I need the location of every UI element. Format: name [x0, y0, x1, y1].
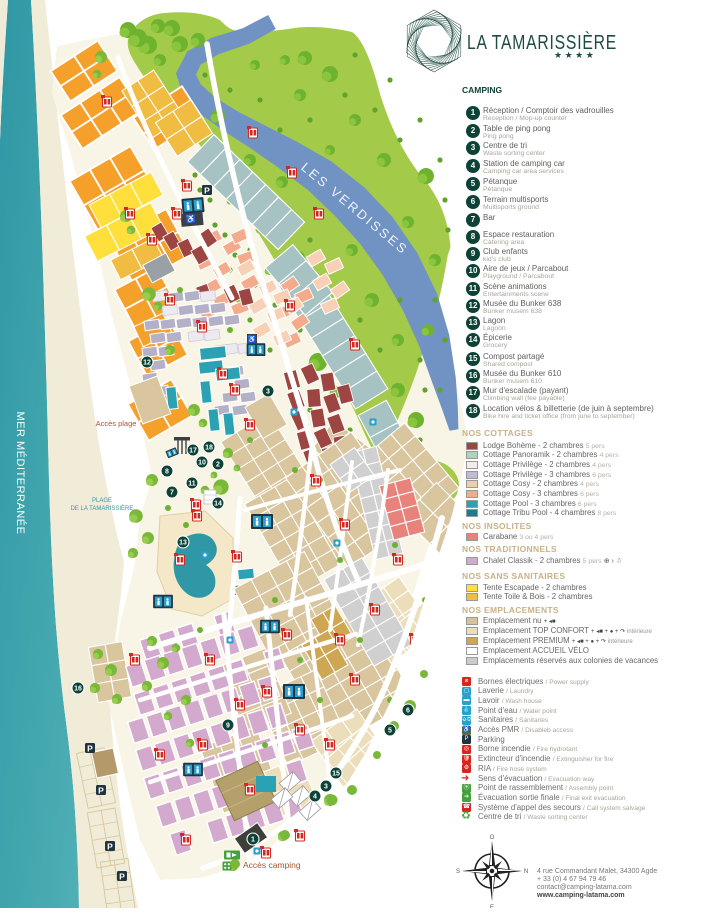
- svg-text:11: 11: [188, 480, 196, 487]
- svg-text:LA TAMARISSIÈRE: LA TAMARISSIÈRE: [467, 31, 617, 54]
- svg-text:O: O: [490, 835, 495, 841]
- svg-text:♿: ♿: [186, 214, 197, 225]
- svg-text:13: 13: [179, 539, 187, 546]
- svg-text:Accès camping: Accès camping: [243, 860, 301, 870]
- svg-text:6: 6: [406, 707, 410, 714]
- svg-text:9: 9: [226, 722, 230, 729]
- svg-text:DE LA TAMARISSIÈRE: DE LA TAMARISSIÈRE: [71, 505, 134, 512]
- svg-text:N: N: [524, 869, 528, 875]
- svg-text:★ ★ ★ ★: ★ ★ ★ ★: [554, 50, 594, 60]
- svg-text:7: 7: [170, 489, 174, 496]
- svg-text:♿: ♿: [248, 335, 257, 344]
- svg-text:16: 16: [74, 685, 82, 692]
- svg-text:Accès plage: Accès plage: [96, 419, 137, 428]
- svg-text:5: 5: [388, 727, 392, 734]
- svg-text:2: 2: [216, 461, 220, 468]
- svg-text:1: 1: [251, 836, 255, 843]
- svg-text:4: 4: [313, 793, 317, 800]
- svg-text:3: 3: [266, 388, 270, 395]
- svg-text:17: 17: [189, 447, 197, 454]
- svg-text:14: 14: [214, 500, 222, 507]
- svg-text:8: 8: [165, 468, 169, 475]
- svg-text:3: 3: [324, 783, 328, 790]
- svg-text:15: 15: [332, 770, 340, 777]
- svg-text:S: S: [456, 869, 460, 875]
- svg-text:18: 18: [205, 444, 213, 451]
- svg-text:MER MÉDITERRANÉE: MER MÉDITERRANÉE: [14, 412, 27, 535]
- svg-text:PLAGE: PLAGE: [92, 498, 112, 504]
- svg-text:10: 10: [198, 459, 206, 466]
- svg-text:12: 12: [143, 359, 151, 366]
